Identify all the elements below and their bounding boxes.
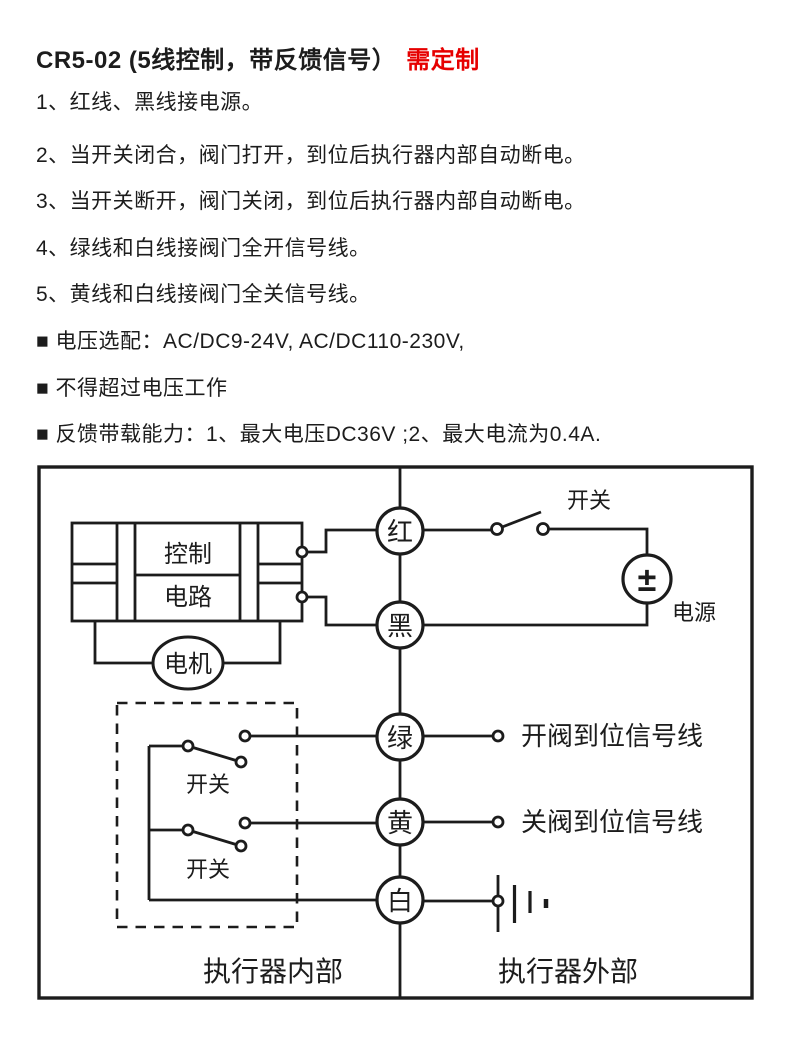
control-label-line1: 控制 (164, 541, 212, 568)
power-switch-label: 开关 (567, 488, 611, 513)
terminal-dot (493, 817, 503, 827)
wire-label-red: 红 (387, 517, 413, 547)
terminal-dot (297, 547, 307, 557)
switch-lever (497, 512, 541, 529)
power-circuit: ± 开关 电源 (423, 488, 716, 625)
switch-contact-dot (183, 825, 193, 835)
document-page: CR5-02 (5线控制，带反馈信号）需定制 1、红线、黑线接电源。 2、当开关… (0, 0, 790, 1039)
signal-outputs: 开阀到位信号线 关阀到位信号线 (423, 721, 703, 932)
switch-contact-dot (492, 524, 503, 535)
switch-contact-dot (236, 757, 246, 767)
region-labels: 执行器内部 执行器外部 (203, 956, 638, 987)
close-signal-label: 关阀到位信号线 (521, 807, 703, 837)
terminal-dot (493, 731, 503, 741)
control-label-line2: 电路 (164, 584, 212, 611)
wire-label-yellow: 黄 (387, 808, 413, 838)
inside-region-label: 执行器内部 (203, 956, 343, 987)
terminal-dot (297, 592, 307, 602)
switch-contact-dot (538, 524, 549, 535)
power-source-label: 电源 (672, 600, 716, 625)
wire-label-black: 黑 (387, 611, 413, 641)
motor-label: 电机 (164, 651, 212, 678)
open-signal-label: 开阀到位信号线 (521, 721, 703, 751)
switch-lever (188, 746, 241, 762)
switch-contact-dot (240, 818, 250, 828)
terminal-dot (493, 896, 503, 906)
feedback-switch-block: 开关 开关 (117, 703, 378, 927)
switch-contact-dot (183, 741, 193, 751)
wire-label-green: 绿 (387, 723, 413, 753)
close-switch-label: 开关 (186, 857, 230, 882)
switch-contact-dot (240, 731, 250, 741)
power-polarity-label: ± (638, 561, 657, 599)
control-circuit-block: 控制 电路 电机 (72, 523, 378, 689)
switch-contact-dot (236, 841, 246, 851)
wiring-diagram: 控制 电路 电机 ± 开关 电源 (0, 0, 790, 1039)
open-switch-label: 开关 (186, 772, 230, 797)
wire-label-white: 白 (387, 886, 413, 916)
switch-lever (188, 830, 241, 846)
outside-region-label: 执行器外部 (498, 956, 638, 987)
